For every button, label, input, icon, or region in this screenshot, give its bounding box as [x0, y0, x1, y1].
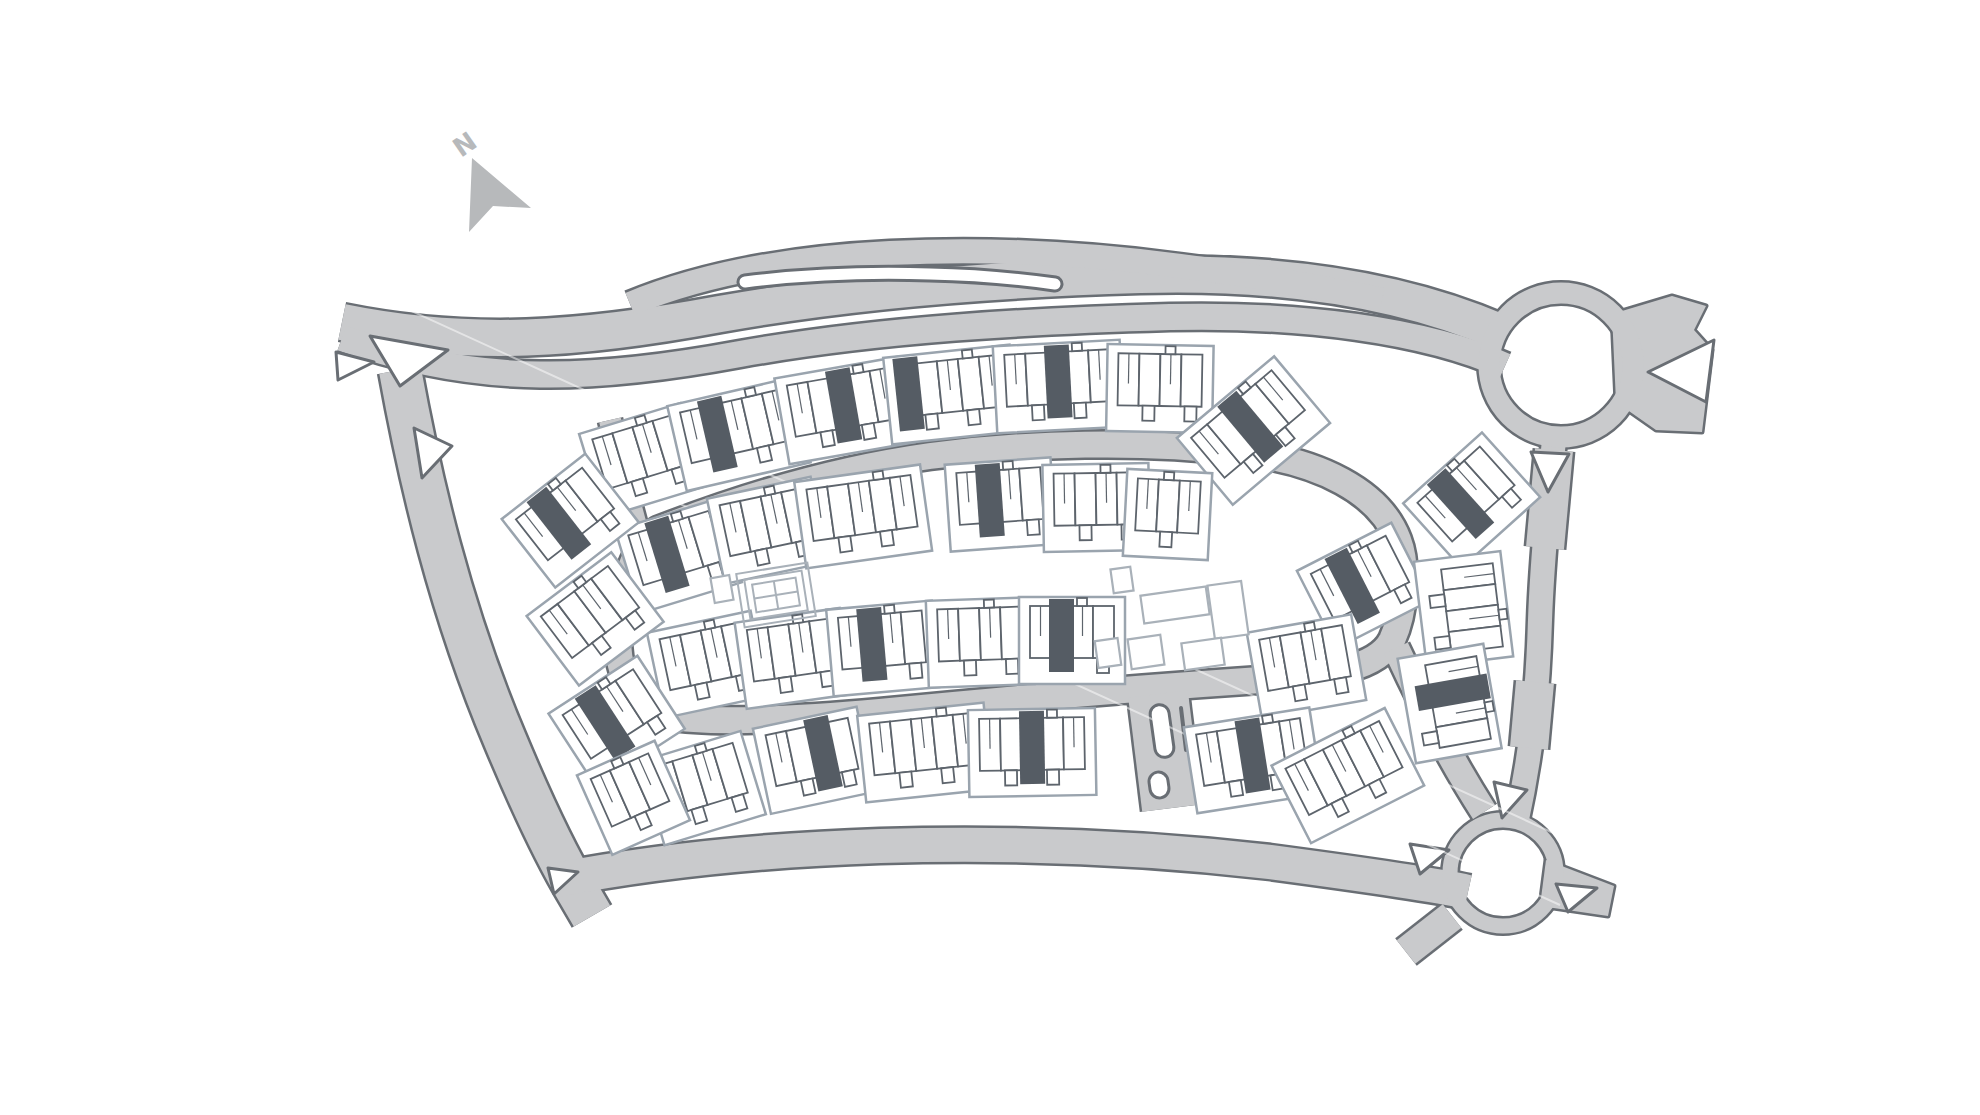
- unit-porch: [1159, 532, 1172, 548]
- site-plan-page: N: [0, 0, 1980, 1115]
- highlighted-unit: [1019, 711, 1045, 784]
- east-road-widening-lower: [1529, 682, 1535, 748]
- housing-block: [1398, 644, 1502, 763]
- community-building: [1207, 581, 1248, 639]
- unit-dormer: [1072, 343, 1082, 352]
- unit-porch: [1142, 406, 1154, 421]
- house-unit: [1000, 718, 1022, 770]
- unit-dormer: [1498, 609, 1507, 620]
- unit-porch: [1434, 636, 1450, 650]
- unit-dormer: [704, 620, 715, 630]
- roundabout-southwest-exit: [1406, 916, 1452, 952]
- unit-dormer: [873, 471, 884, 480]
- north-arrow-icon: [469, 158, 531, 232]
- unit-porch: [1032, 405, 1045, 421]
- housing-block: [993, 340, 1124, 434]
- unit-porch: [862, 423, 876, 440]
- unit-porch: [909, 663, 922, 679]
- unit-porch: [1005, 770, 1017, 785]
- unit-dormer: [1304, 622, 1315, 632]
- unit-divider: [1106, 473, 1107, 503]
- house-unit: [1139, 354, 1161, 406]
- north-arrow: N: [447, 126, 531, 232]
- community-building: [1128, 635, 1165, 669]
- housing-block: [945, 457, 1057, 551]
- house-unit: [1019, 467, 1044, 520]
- unit-dormer: [1047, 710, 1057, 718]
- unit-dormer: [1100, 465, 1110, 473]
- unit-porch: [1047, 770, 1059, 785]
- unit-dormer: [1165, 346, 1175, 354]
- unit-porch: [1293, 684, 1307, 701]
- unit-divider: [1064, 474, 1065, 504]
- unit-porch: [695, 682, 710, 699]
- unit-dormer: [884, 605, 895, 614]
- housing-block: [826, 601, 939, 697]
- unit-divider: [1074, 717, 1075, 747]
- unit-dormer: [1077, 598, 1087, 606]
- housing-block: [968, 708, 1096, 797]
- house-unit: [1181, 354, 1203, 406]
- unit-porch: [757, 445, 772, 462]
- unit-porch: [1429, 594, 1445, 608]
- unit-porch: [842, 770, 857, 787]
- housing-block: [1247, 614, 1366, 718]
- unit-divider: [1170, 354, 1171, 384]
- unit-porch: [1074, 403, 1087, 419]
- unit-porch: [779, 676, 793, 693]
- unit-dormer: [1262, 714, 1273, 723]
- unit-dormer: [744, 387, 756, 397]
- street-island: [1148, 771, 1170, 799]
- housing-block: [1403, 433, 1540, 569]
- unit-porch: [1422, 731, 1439, 745]
- unit-dormer: [1003, 461, 1014, 470]
- housing-block: [1123, 469, 1212, 560]
- house-unit: [1075, 473, 1097, 525]
- unit-dormer: [1164, 472, 1174, 481]
- unit-porch: [1334, 677, 1348, 694]
- unit-divider: [1128, 353, 1129, 383]
- unit-porch: [820, 430, 834, 447]
- unit-porch: [755, 548, 770, 565]
- site-plan-canvas: N: [0, 0, 1980, 1115]
- unit-porch: [1229, 780, 1243, 797]
- unit-porch: [967, 409, 981, 425]
- housing-block-layer: [502, 340, 1540, 855]
- unit-porch: [925, 413, 939, 429]
- unit-divider: [990, 719, 991, 749]
- unit-porch: [1079, 525, 1091, 540]
- unit-porch: [899, 771, 913, 787]
- roundabout-north-east: [1489, 293, 1633, 437]
- unit-dormer: [1484, 701, 1494, 712]
- unit-dormer: [962, 350, 973, 359]
- housing-block: [794, 465, 932, 569]
- community-building: [1140, 587, 1209, 624]
- unit-dormer: [764, 486, 775, 496]
- unit-dormer: [852, 364, 863, 374]
- unit-porch: [1027, 519, 1040, 535]
- unit-porch: [1184, 406, 1196, 421]
- unit-porch: [1006, 659, 1019, 674]
- unit-porch: [941, 767, 955, 783]
- unit-porch: [801, 778, 816, 795]
- house-unit: [901, 610, 926, 664]
- house-unit: [958, 608, 981, 661]
- highlighted-unit: [975, 463, 1005, 538]
- community-building: [1095, 638, 1122, 668]
- unit-porch: [964, 660, 977, 675]
- highlighted-unit: [1049, 599, 1074, 672]
- community-building: [1181, 638, 1224, 670]
- unit-porch: [838, 536, 852, 553]
- unit-dormer: [695, 743, 707, 754]
- unit-dormer: [936, 708, 947, 717]
- house-unit: [1156, 479, 1180, 532]
- house-unit: [1042, 717, 1064, 769]
- unit-porch: [880, 530, 894, 547]
- unit-dormer: [984, 599, 994, 607]
- unit-dormer: [671, 511, 683, 522]
- community-building: [710, 575, 733, 603]
- highlighted-unit: [1044, 344, 1073, 418]
- north-label: N: [447, 126, 482, 163]
- community-building: [1110, 567, 1133, 594]
- unit-dormer: [635, 415, 647, 426]
